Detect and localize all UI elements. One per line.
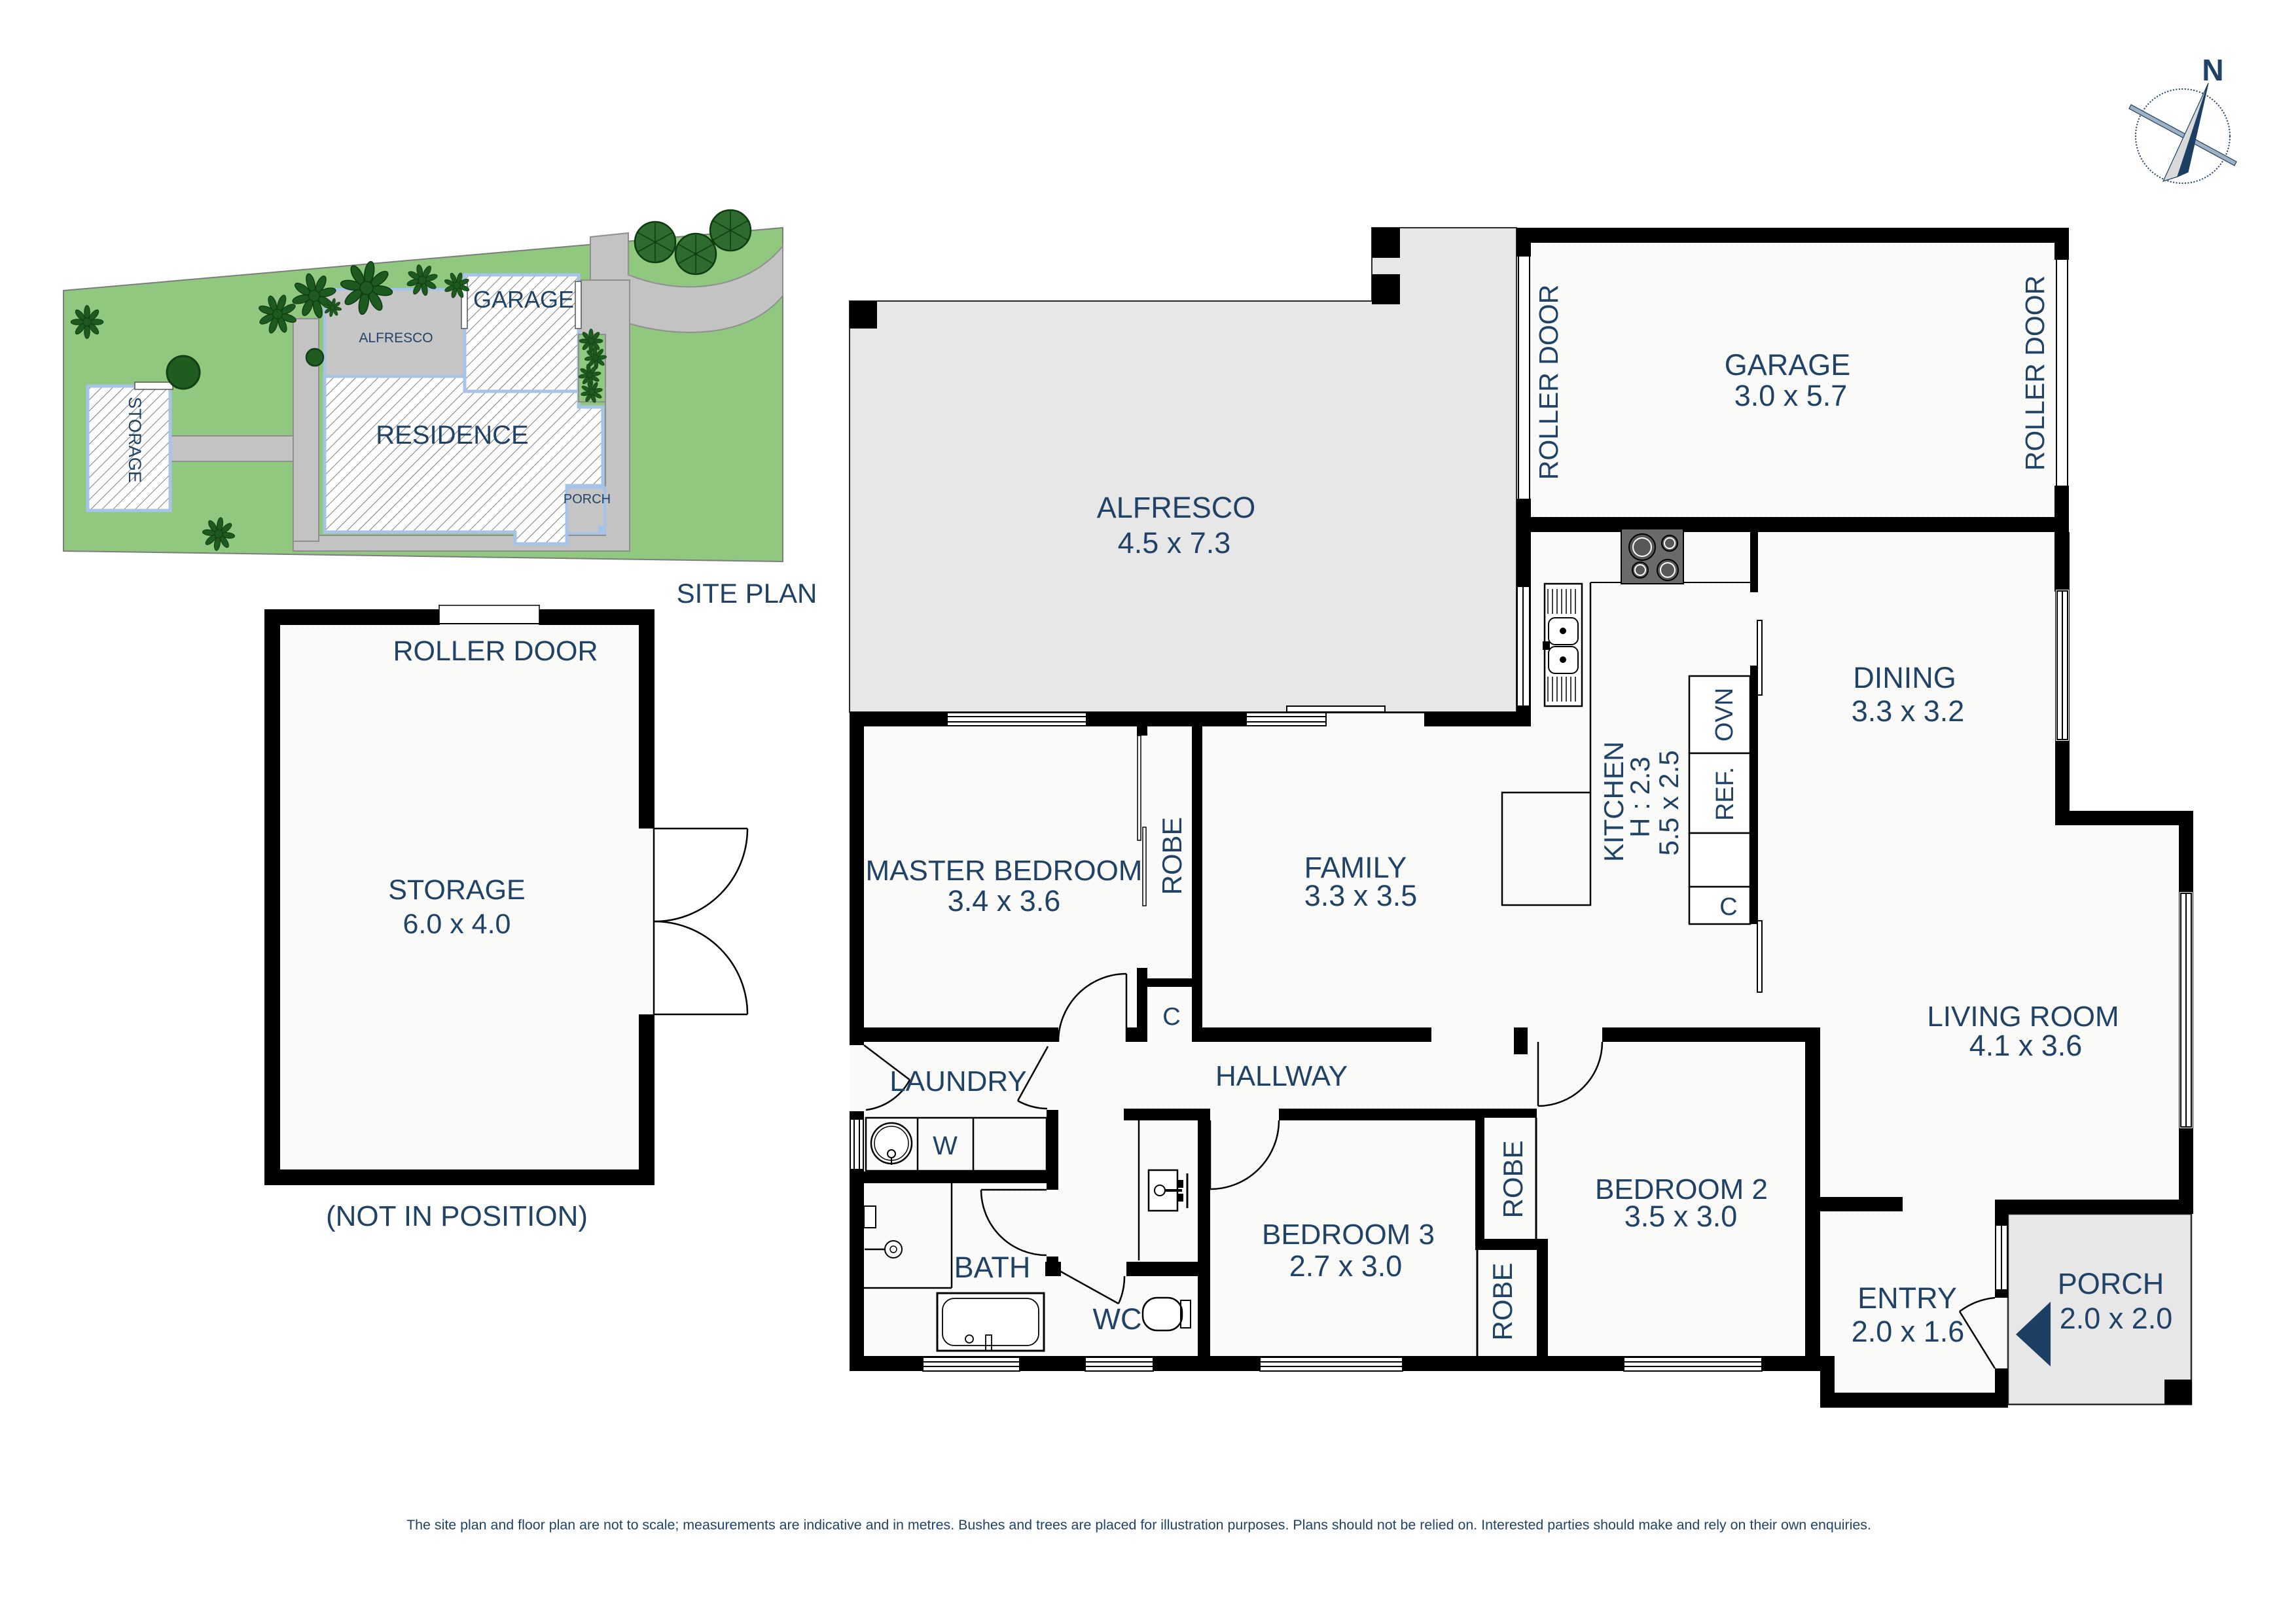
- svg-text:ROBE: ROBE: [1487, 1262, 1518, 1340]
- svg-text:3.4 x 3.6: 3.4 x 3.6: [948, 884, 1061, 918]
- svg-text:6.0 x 4.0: 6.0 x 4.0: [403, 908, 511, 940]
- svg-text:STORAGE: STORAGE: [388, 874, 525, 906]
- svg-text:3.3 x 3.2: 3.3 x 3.2: [1852, 694, 1965, 728]
- svg-text:N: N: [2202, 53, 2223, 87]
- svg-text:3.0 x 5.7: 3.0 x 5.7: [1734, 379, 1848, 412]
- svg-text:RESIDENCE: RESIDENCE: [376, 421, 528, 450]
- svg-text:LAUNDRY: LAUNDRY: [889, 1065, 1026, 1097]
- svg-text:PORCH: PORCH: [2058, 1267, 2164, 1300]
- svg-text:OVN: OVN: [1711, 688, 1738, 741]
- svg-text:ALFRESCO: ALFRESCO: [1097, 491, 1256, 524]
- svg-text:ENTRY: ENTRY: [1857, 1281, 1957, 1315]
- svg-text:3.3 x 3.5: 3.3 x 3.5: [1304, 879, 1418, 912]
- svg-text:DINING: DINING: [1853, 661, 1956, 694]
- svg-text:(NOT IN POSITION): (NOT IN POSITION): [326, 1200, 588, 1232]
- svg-text:GARAGE: GARAGE: [473, 286, 574, 313]
- svg-text:SITE PLAN: SITE PLAN: [677, 578, 817, 609]
- svg-text:ALFRESCO: ALFRESCO: [359, 330, 433, 346]
- svg-text:3.5 x 3.0: 3.5 x 3.0: [1624, 1200, 1738, 1233]
- svg-text:STORAGE: STORAGE: [125, 397, 145, 483]
- svg-text:4.1 x 3.6: 4.1 x 3.6: [1969, 1029, 2083, 1062]
- svg-text:ROBE: ROBE: [1157, 817, 1187, 895]
- svg-text:C: C: [1719, 893, 1737, 921]
- svg-text:C: C: [1162, 1003, 1180, 1031]
- svg-text:HALLWAY: HALLWAY: [1215, 1060, 1348, 1092]
- svg-text:4.5 x 7.3: 4.5 x 7.3: [1118, 526, 1231, 560]
- svg-text:5.5 x 2.5: 5.5 x 2.5: [1653, 750, 1684, 855]
- svg-text:GARAGE: GARAGE: [1725, 348, 1851, 382]
- svg-text:H : 2.3: H : 2.3: [1624, 757, 1655, 838]
- svg-text:2.0 x 1.6: 2.0 x 1.6: [1852, 1315, 1965, 1348]
- svg-text:WC: WC: [1093, 1302, 1142, 1336]
- svg-text:ROBE: ROBE: [1498, 1140, 1528, 1218]
- svg-text:BEDROOM 3: BEDROOM 3: [1262, 1219, 1435, 1251]
- svg-text:MASTER BEDROOM: MASTER BEDROOM: [866, 855, 1143, 887]
- svg-text:ROLLER DOOR: ROLLER DOOR: [1534, 285, 1564, 480]
- svg-text:W: W: [933, 1132, 958, 1160]
- svg-text:2.0 x 2.0: 2.0 x 2.0: [2060, 1302, 2173, 1335]
- svg-text:ROLLER DOOR: ROLLER DOOR: [2020, 276, 2050, 471]
- svg-text:2.7 x 3.0: 2.7 x 3.0: [1289, 1249, 1403, 1283]
- svg-text:LIVING ROOM: LIVING ROOM: [1927, 1001, 2119, 1033]
- svg-text:The site plan and floor plan a: The site plan and floor plan are not to …: [406, 1517, 1871, 1533]
- svg-text:REF.: REF.: [1712, 767, 1739, 821]
- svg-text:ROLLER DOOR: ROLLER DOOR: [393, 635, 598, 667]
- svg-text:PORCH: PORCH: [564, 492, 611, 507]
- svg-text:BATH: BATH: [954, 1251, 1031, 1284]
